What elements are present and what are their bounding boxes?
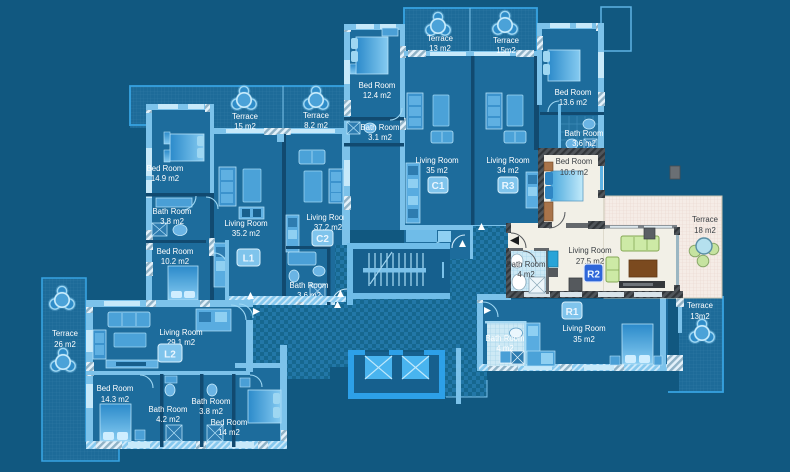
svg-text:Bed Room10.2 m2: Bed Room10.2 m2 — [157, 247, 194, 266]
svg-text:Bed Room14.9 m2: Bed Room14.9 m2 — [147, 164, 184, 183]
svg-text:Terrace15 m2: Terrace15 m2 — [232, 112, 258, 131]
svg-text:Bed Room12.4 m2: Bed Room12.4 m2 — [359, 81, 396, 100]
svg-text:C2: C2 — [316, 234, 329, 245]
svg-text:Bed Room13.6 m2: Bed Room13.6 m2 — [555, 88, 592, 107]
svg-text:Terrace13 m2: Terrace13 m2 — [427, 34, 453, 53]
svg-text:C1: C1 — [432, 181, 445, 192]
svg-text:R2: R2 — [587, 270, 600, 281]
svg-text:R1: R1 — [566, 307, 579, 318]
svg-text:L2: L2 — [164, 350, 176, 361]
svg-text:L1: L1 — [243, 254, 255, 265]
svg-text:Terrace8.2 m2: Terrace8.2 m2 — [303, 111, 329, 130]
svg-text:R3: R3 — [502, 181, 515, 192]
svg-text:Terrace15m2: Terrace15m2 — [493, 36, 519, 55]
